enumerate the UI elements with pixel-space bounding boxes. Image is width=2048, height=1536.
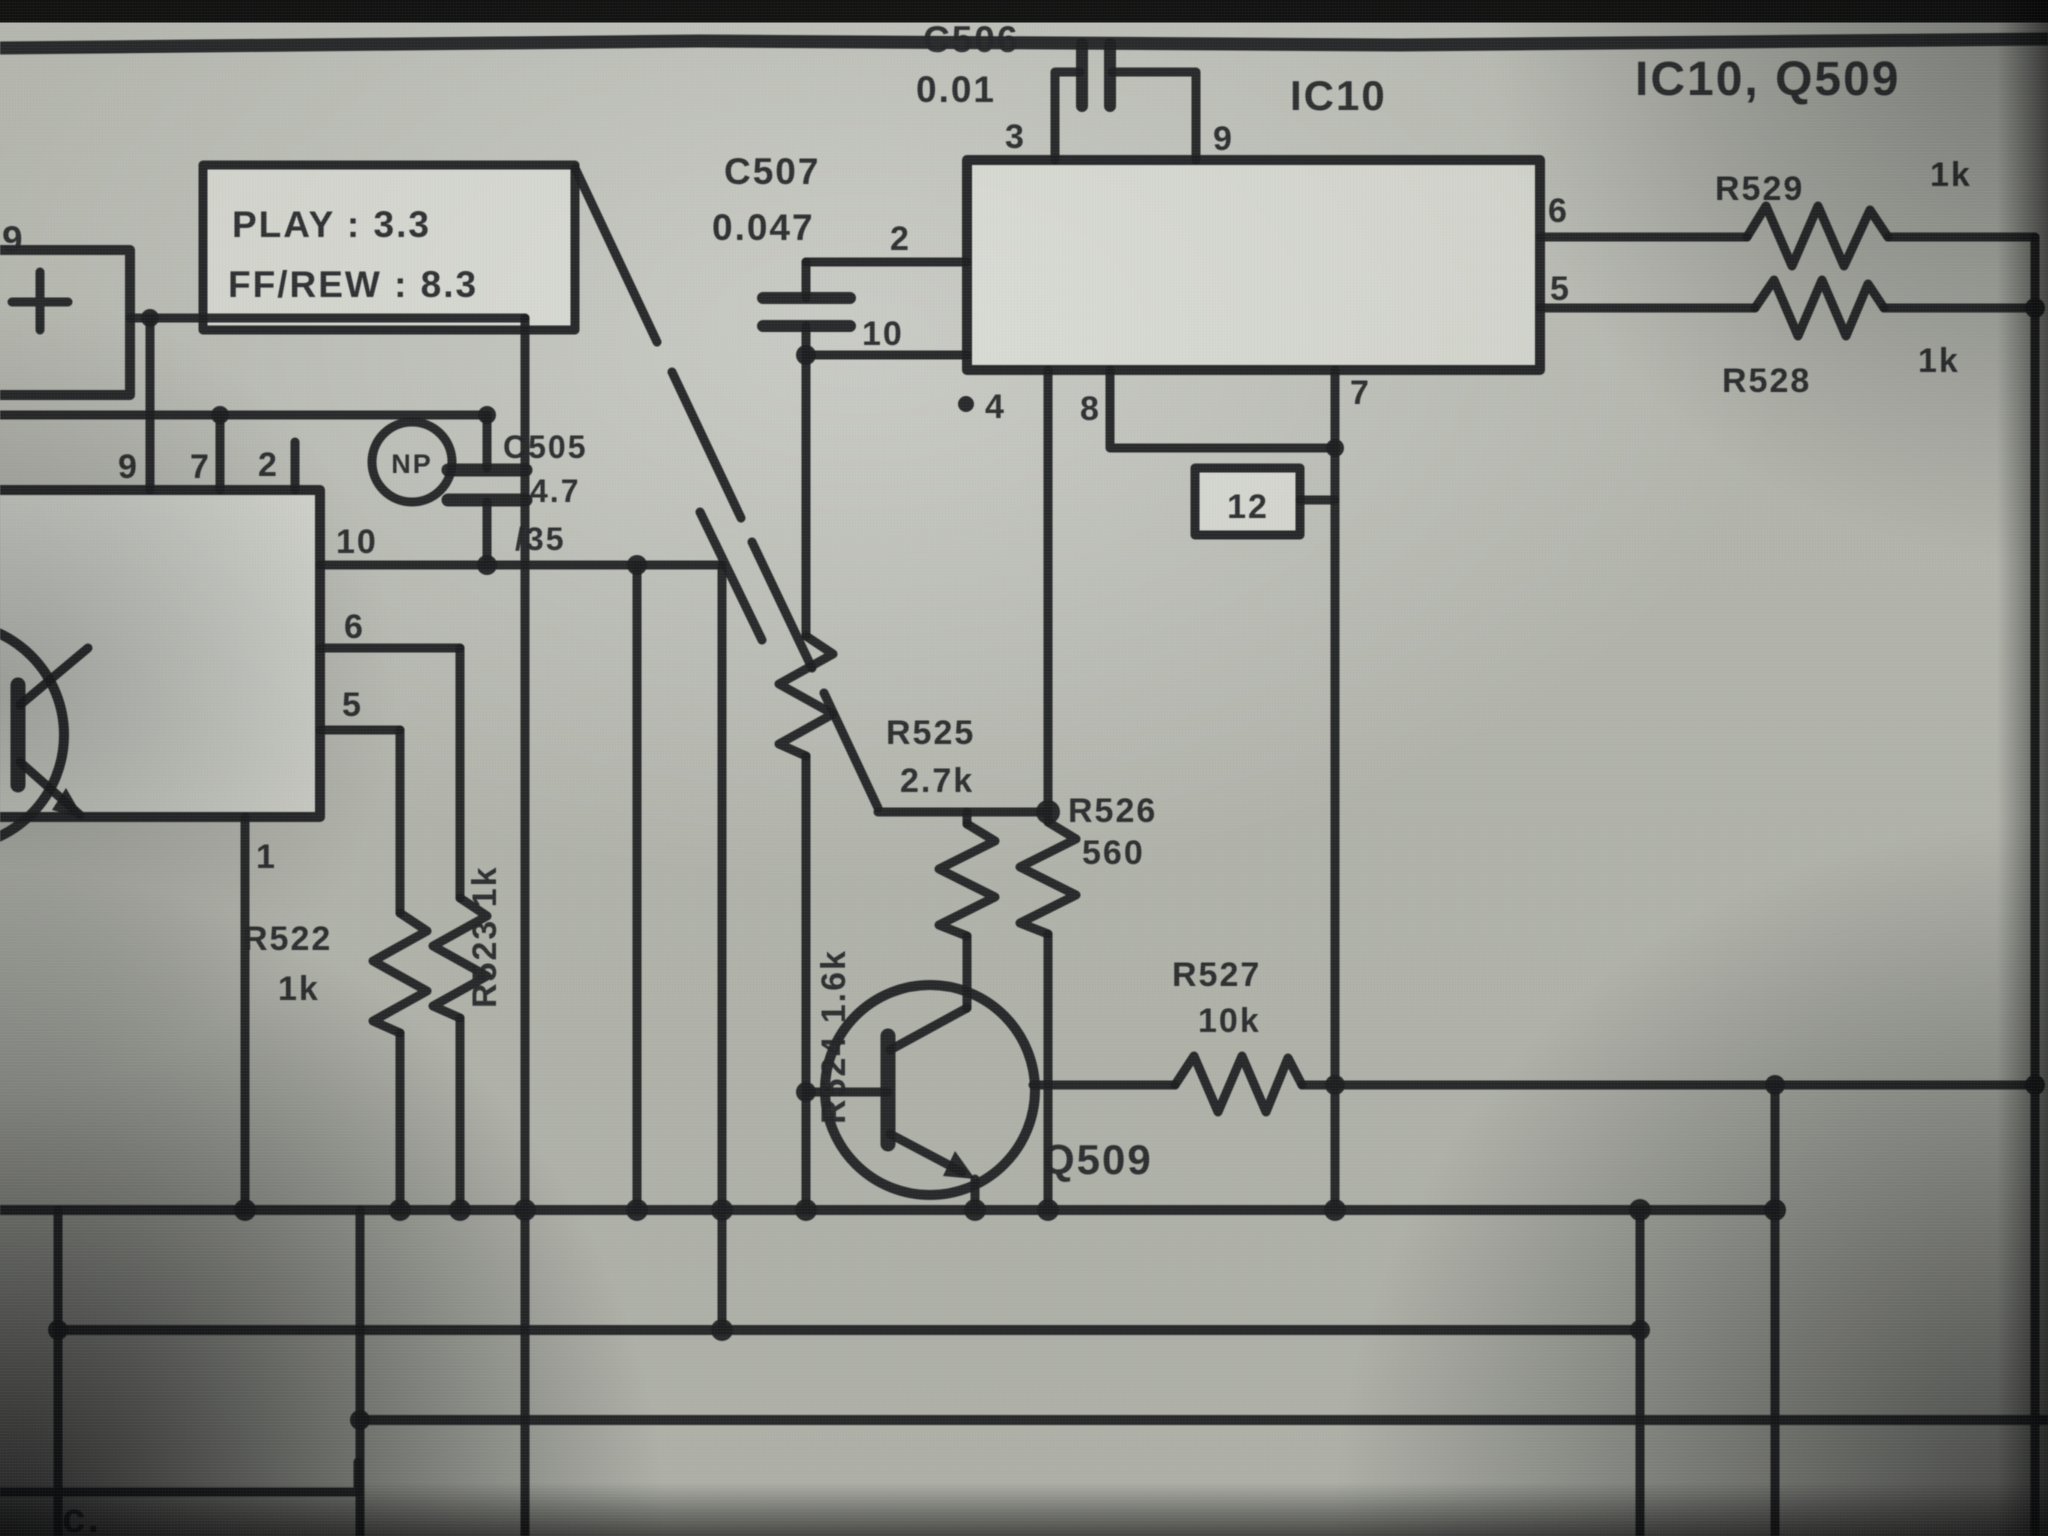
bottom-corner-mark: c. [62, 1494, 101, 1536]
left-ic-pin1-label: 1 [256, 838, 277, 876]
ic10-pin6-label: 6 [1548, 192, 1569, 230]
ic10-pin4-label: 4 [985, 388, 1006, 426]
wire-pin8 [1110, 370, 1335, 448]
schematic-drawing: IC10, Q509 C506 0.01 3 9 IC10 6 R529 1k … [0, 0, 2048, 1536]
r522-value-label: 1k [278, 970, 320, 1008]
r527-ref-label: R527 [1172, 956, 1261, 994]
c507-ref-label: C507 [724, 151, 820, 192]
ic10-box [967, 160, 1540, 370]
corner-pin9-label: 9 [2, 219, 25, 260]
r525-ref-label: R525 [886, 714, 975, 752]
resistor-r529-symbol [1747, 206, 1888, 266]
left-ic-pin6-label: 6 [344, 608, 365, 646]
resistor-r529 [1540, 206, 2035, 266]
c505-ref-label: C505 [503, 429, 588, 465]
page-note: IC10, Q509 [1635, 53, 1900, 106]
wire-crossing-slash [700, 512, 762, 640]
schematic-photo: IC10, Q509 C506 0.01 3 9 IC10 6 R529 1k … [0, 0, 2048, 1536]
ic10-pin10-label: 10 [862, 315, 904, 353]
ic10-pin7-label: 7 [1350, 374, 1371, 412]
left-ic-pin7-label: 7 [190, 448, 211, 486]
r523-rotated-label: R523 1k [466, 865, 504, 1008]
left-ic-pin10-label: 10 [336, 523, 378, 561]
c505-value-label: 4.7 [530, 473, 580, 509]
left-ic-box [0, 318, 722, 1210]
c506-ref-label: C506 [923, 19, 1019, 60]
r529-value-label: 1k [1930, 156, 1972, 194]
resistor-r522-symbol [373, 913, 427, 1033]
left-ic-pin5-label: 5 [342, 686, 363, 724]
capacitor-c506 [1055, 44, 1196, 160]
resistor-r528 [1540, 280, 2035, 336]
resistor-r528-symbol [1755, 280, 1884, 336]
r528-value-label: 1k [1918, 342, 1960, 380]
ic10-pin9-label: 9 [1213, 120, 1234, 158]
c505-voltage-label: /35 [515, 521, 565, 557]
left-ic-pin2-label: 2 [258, 446, 279, 484]
pin12-label: 12 [1227, 488, 1269, 526]
resistor-r525-symbol [939, 824, 995, 936]
r526-value-label: 560 [1082, 834, 1145, 872]
annotation-play-voltage: PLAY : 3.3 [232, 204, 431, 245]
resistor-r525 [878, 812, 1048, 1008]
r524-rotated-label: R524 1.6k [815, 949, 853, 1124]
r522-ref-label: R522 [243, 920, 332, 958]
resistor-r527-symbol [1175, 1056, 1302, 1112]
np-marking-label: NP [391, 449, 433, 479]
annotation-ffrew-voltage: FF/REW : 8.3 [228, 264, 478, 305]
q509-ref-label: Q509 [1042, 1136, 1153, 1183]
left-ic-pin9-label: 9 [118, 448, 139, 486]
resistor-r526-symbol [1020, 822, 1076, 934]
ic10-pin3-label: 3 [1005, 118, 1026, 156]
r525-value-label: 2.7k [900, 762, 974, 800]
r529-ref-label: R529 [1715, 170, 1804, 208]
r528-ref-label: R528 [1722, 362, 1811, 400]
ic10-pin8-label: 8 [1080, 390, 1101, 428]
c507-value-label: 0.047 [712, 207, 815, 248]
resistor-r522 [373, 730, 427, 1210]
ic10-pin5-label: 5 [1550, 270, 1571, 308]
r526-ref-label: R526 [1068, 792, 1157, 830]
resistor-r527 [1033, 1056, 2035, 1112]
top-left-partial-box [0, 250, 130, 395]
ic10-ref-label: IC10 [1290, 72, 1387, 119]
top-border-wire [0, 39, 2048, 48]
ic10-pin2-label: 2 [890, 220, 911, 258]
r527-value-label: 10k [1198, 1002, 1261, 1040]
c506-value-label: 0.01 [916, 69, 996, 110]
